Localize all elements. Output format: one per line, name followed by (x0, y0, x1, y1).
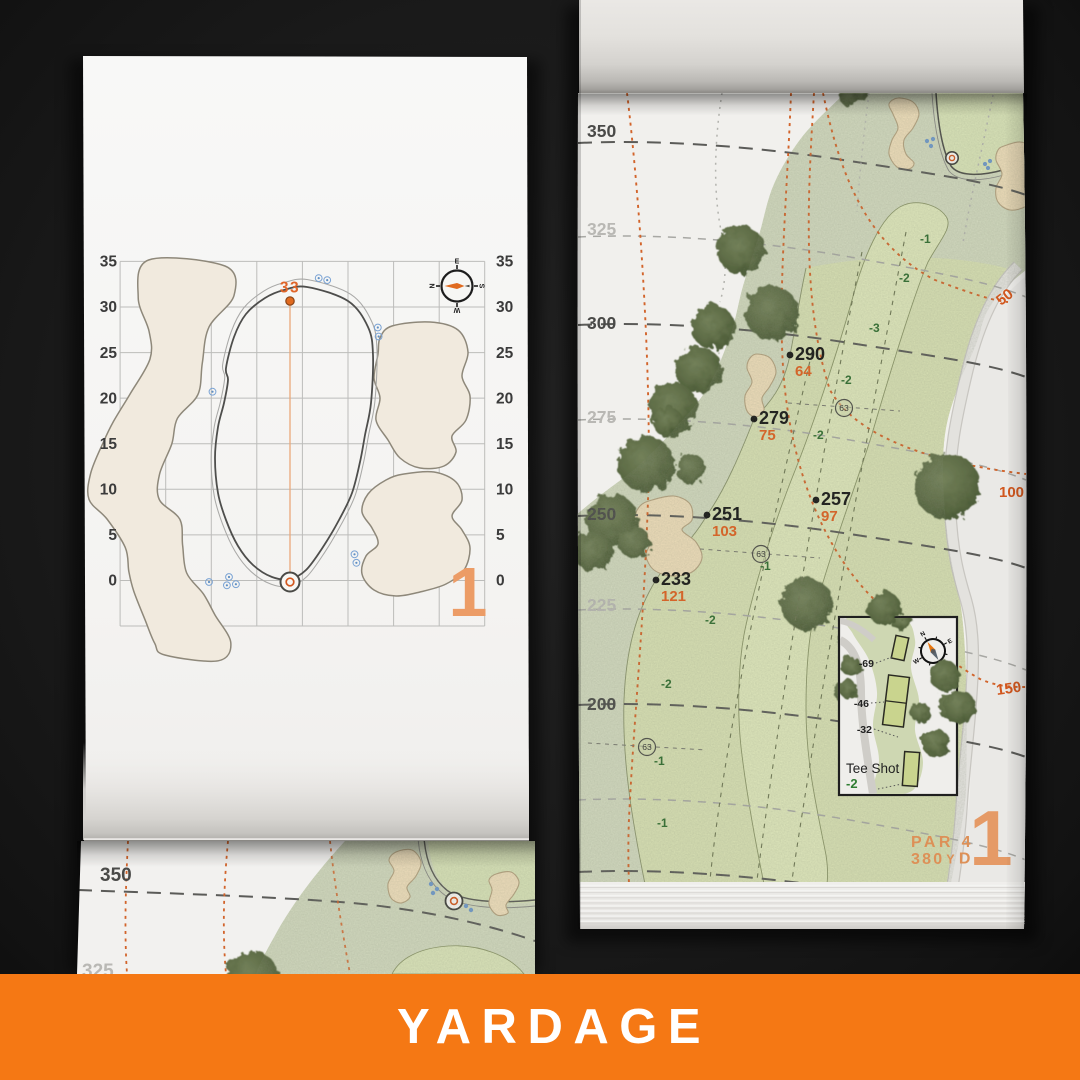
svg-text:-46: -46 (854, 698, 869, 710)
svg-text:-69: -69 (859, 658, 874, 670)
svg-text:1: 1 (449, 553, 488, 631)
svg-text:275: 275 (587, 407, 616, 427)
svg-text:20: 20 (100, 390, 117, 407)
svg-text:325: 325 (587, 219, 616, 239)
svg-text:-2: -2 (846, 776, 858, 791)
svg-text:380YD: 380YD (911, 851, 973, 869)
svg-text:Tee Shot: Tee Shot (846, 761, 900, 776)
svg-text:35: 35 (496, 254, 514, 271)
svg-text:PAR 4: PAR 4 (911, 834, 974, 851)
svg-text:25: 25 (496, 345, 514, 362)
svg-text:YARDAGE: YARDAGE (397, 1000, 711, 1054)
svg-text:S: S (478, 284, 485, 289)
svg-text:1: 1 (969, 794, 1012, 882)
svg-text:33: 33 (280, 280, 300, 297)
svg-text:30: 30 (496, 299, 513, 316)
svg-text:15: 15 (100, 436, 118, 453)
svg-text:0: 0 (496, 573, 505, 590)
svg-text:E: E (455, 259, 460, 266)
svg-text:20: 20 (496, 390, 513, 407)
svg-text:350: 350 (587, 121, 616, 141)
svg-text:0: 0 (108, 573, 117, 590)
svg-text:5: 5 (496, 527, 505, 544)
svg-text:W: W (453, 306, 460, 313)
svg-text:N: N (430, 283, 437, 288)
svg-text:300: 300 (587, 313, 616, 333)
svg-text:35: 35 (100, 254, 118, 271)
svg-text:30: 30 (100, 299, 117, 316)
svg-text:15: 15 (496, 436, 514, 453)
svg-text:-32: -32 (857, 724, 872, 736)
svg-text:10: 10 (100, 482, 117, 499)
svg-text:5: 5 (108, 527, 117, 544)
svg-text:25: 25 (100, 345, 118, 362)
svg-text:350: 350 (100, 865, 132, 886)
svg-text:10: 10 (496, 482, 513, 499)
